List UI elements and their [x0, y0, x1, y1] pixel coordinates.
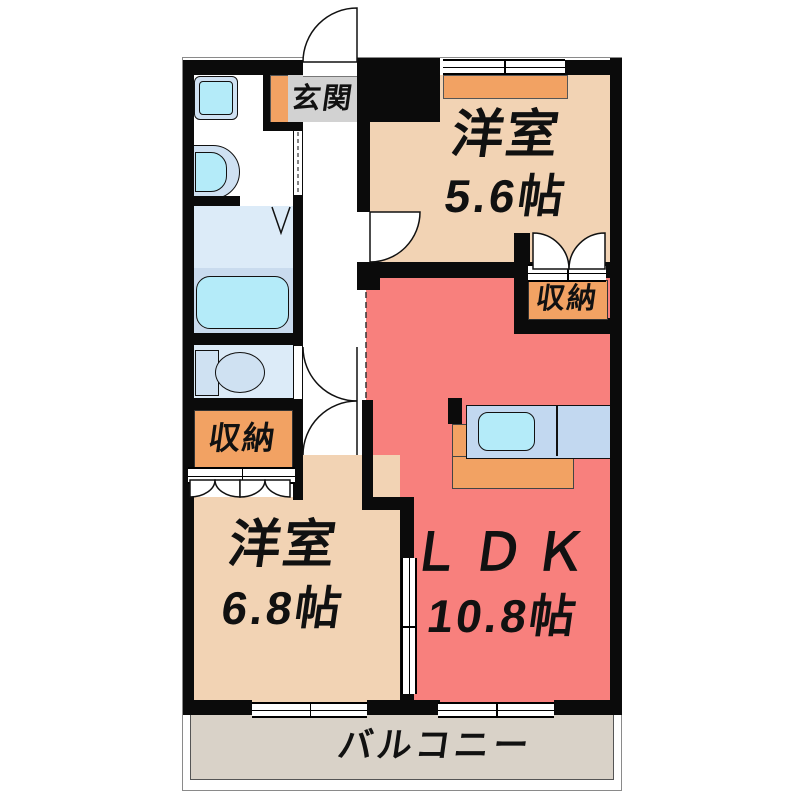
- balcony-window-ldk: [438, 702, 554, 718]
- wall-right: [610, 58, 622, 715]
- balcony-label: バルコニー: [237, 728, 632, 765]
- closet-counter-icon: [443, 75, 568, 99]
- bedroom1-size: 5.6帖: [397, 172, 616, 220]
- bedroom2-size: 6.8帖: [175, 584, 392, 632]
- storage2-bifold-track: [188, 467, 295, 484]
- wall-corridor-right-upper: [357, 122, 370, 212]
- ldk-name: ＬＤＫ: [394, 526, 612, 581]
- kitchen-counter-divider: [556, 406, 558, 456]
- storage-bedroom2-label: 収納: [192, 422, 294, 456]
- wall-bottom-1: [183, 700, 252, 715]
- bedroom1-window: [443, 59, 565, 75]
- washing-machine-icon: [199, 81, 233, 115]
- toilet-bowl-icon: [215, 352, 265, 393]
- wall-top-left: [183, 60, 303, 75]
- toilet-door-gap: [294, 346, 302, 399]
- wall-bottom-2: [367, 700, 440, 715]
- ldk-size: 10.8帖: [395, 592, 612, 640]
- entrance-label: 玄関: [286, 84, 359, 114]
- storage-bedroom1-label: 収納: [526, 284, 608, 314]
- kitchen-sink-icon: [478, 412, 535, 451]
- entrance-door-gap: [303, 58, 357, 77]
- floor-plan: 玄関 洋室 5.6帖 収納 収納 洋室 6.8帖 ＬＤＫ 10.8帖 バルコニー: [0, 0, 800, 800]
- vanity-basin-icon: [195, 152, 227, 192]
- entrance-door-swing-icon: [303, 8, 357, 62]
- wall-toilet-storage: [183, 398, 303, 410]
- wall-storage1-bottom: [514, 318, 612, 334]
- wall-bath-toilet: [183, 333, 295, 345]
- wall-kitchen-stub: [448, 398, 462, 424]
- wall-washroom-bath: [188, 196, 240, 206]
- bathroom-door-gap: [240, 196, 293, 206]
- bedroom1-door-gap: [357, 212, 370, 262]
- washroom-door-gap: [294, 131, 302, 195]
- wall-corridor-ldk-stub: [362, 400, 373, 510]
- balcony-window-bedroom2: [252, 702, 367, 718]
- bathtub-icon: [196, 276, 289, 329]
- storage1-bifold-track: [528, 264, 606, 282]
- bedroom2-name: 洋室: [174, 518, 392, 573]
- kitchen-counter-orange2-icon: [452, 456, 574, 489]
- wall-entrance-left: [263, 60, 270, 122]
- bedroom1-name: 洋室: [396, 108, 616, 163]
- wall-bottom-3: [554, 700, 622, 715]
